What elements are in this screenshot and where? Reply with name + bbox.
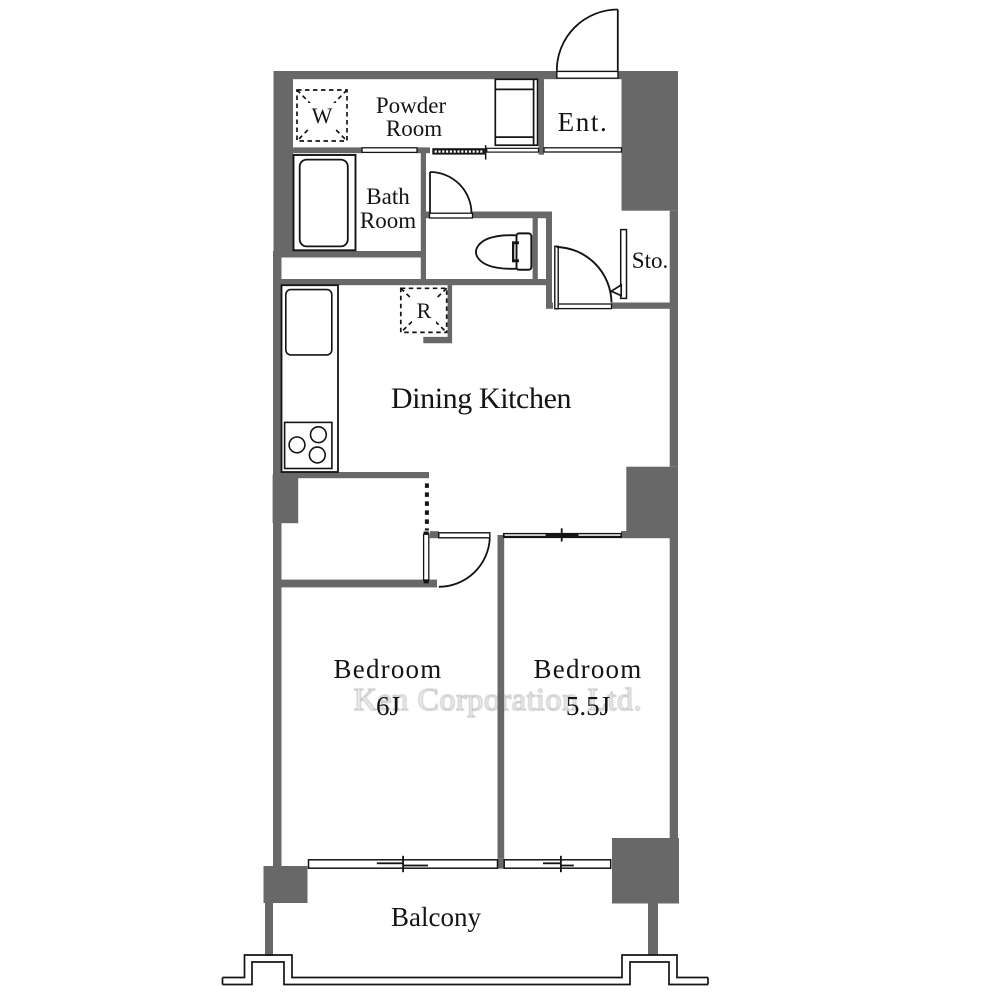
svg-text:Bath: Bath <box>366 184 410 209</box>
svg-text:Room: Room <box>360 208 416 233</box>
svg-text:Bedroom: Bedroom <box>334 654 443 684</box>
svg-text:Sto.: Sto. <box>632 248 668 273</box>
svg-text:Ent.: Ent. <box>558 107 609 137</box>
svg-text:Bedroom: Bedroom <box>534 654 643 684</box>
svg-text:Balcony: Balcony <box>391 902 481 932</box>
svg-text:6J: 6J <box>376 691 400 721</box>
svg-text:Dining Kitchen: Dining Kitchen <box>391 382 572 415</box>
svg-text:W: W <box>312 103 333 128</box>
svg-text:Room: Room <box>386 116 442 141</box>
svg-text:R: R <box>417 298 432 323</box>
svg-text:Powder: Powder <box>376 93 447 118</box>
svg-text:5.5J: 5.5J <box>566 691 610 721</box>
